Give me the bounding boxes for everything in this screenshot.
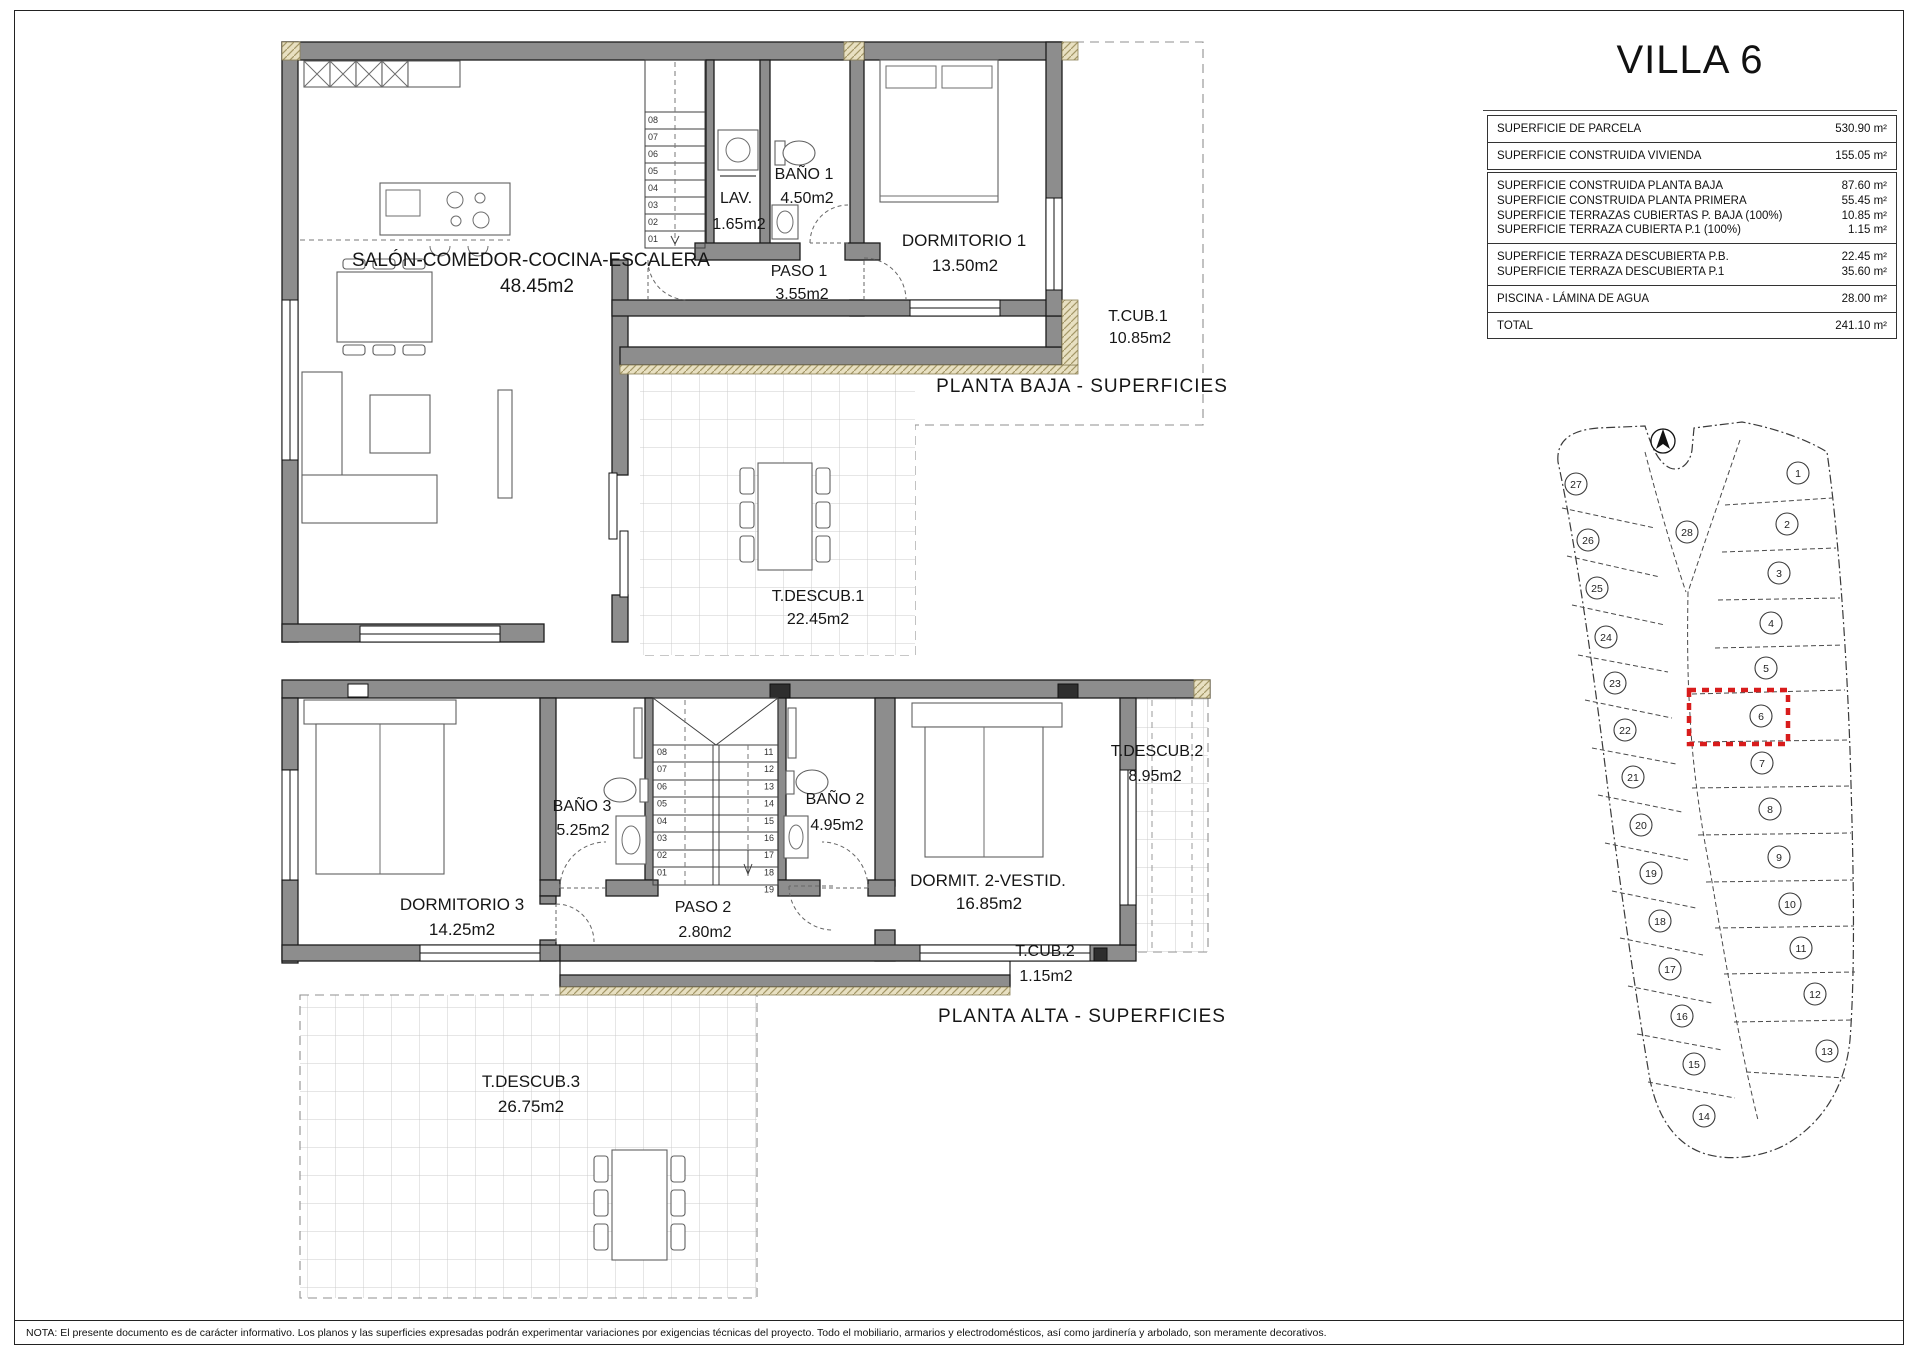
door-arc-dorm3: [556, 904, 594, 942]
terrace-table-p3: [594, 1150, 685, 1260]
label-paso2-name: PASO 2: [675, 899, 732, 916]
label-dorm3-area: 14.25m2: [429, 920, 495, 939]
label-dorm3-name: DORMITORIO 3: [400, 895, 524, 914]
svg-text:16: 16: [1676, 1011, 1688, 1023]
label-tcub1-name: T.CUB.1: [1108, 308, 1168, 325]
svg-text:16: 16: [764, 833, 774, 843]
label-tdescub2-name: T.DESCUB.2: [1111, 743, 1204, 760]
svg-text:12: 12: [764, 764, 774, 774]
svg-text:11: 11: [764, 747, 773, 757]
table-section: TOTAL241.10 m²: [1488, 312, 1896, 339]
svg-text:1: 1: [1795, 468, 1801, 480]
svg-text:24: 24: [1600, 632, 1612, 644]
table-section: PISCINA - LÁMINA DE AGUA28.00 m²: [1488, 285, 1896, 312]
svg-text:26: 26: [1582, 535, 1594, 547]
table-row: SUPERFICIE CONSTRUIDA VIVIENDA155.05 m²: [1488, 142, 1896, 169]
table-row: SUPERFICIE TERRAZAS CUBIERTAS P. BAJA (1…: [1497, 209, 1887, 224]
table-row: SUPERFICIE TERRAZA CUBIERTA P.1 (100%)1.…: [1497, 223, 1887, 238]
site-boundary: [1558, 422, 1854, 1158]
page-title: VILLA 6: [1483, 12, 1897, 108]
site-lot-lines-right: [1690, 498, 1855, 1078]
svg-text:18: 18: [1654, 916, 1666, 928]
dining-table: [337, 259, 432, 355]
door-arc-bano3: [560, 842, 606, 888]
table-row: SUPERFICIE CONSTRUIDA PLANTA PRIMERA55.4…: [1497, 194, 1887, 209]
label-tdescub3-name: T.DESCUB.3: [482, 1072, 580, 1091]
svg-text:07: 07: [648, 132, 658, 142]
label-tdescub3-area: 26.75m2: [498, 1097, 564, 1116]
plan-sheet: 0807060504030201: [0, 0, 1920, 1357]
svg-text:14: 14: [764, 799, 774, 809]
surface-table-detail: SUPERFICIE CONSTRUIDA PLANTA BAJA87.60 m…: [1487, 172, 1897, 339]
svg-text:05: 05: [657, 799, 667, 809]
label-tcub2-area: 1.15m2: [1019, 968, 1072, 985]
dorm3-bed: [304, 700, 456, 874]
terrace-table-p1: [740, 463, 830, 570]
stair-numbers-pa-left: 0807060504030201: [657, 747, 667, 877]
dorm2-bed: [912, 703, 1062, 857]
stair-numbers-pa-right: 111213141516171819: [764, 747, 774, 895]
svg-text:17: 17: [1664, 964, 1676, 976]
footer-note: NOTA: El presente documento es de caráct…: [14, 1320, 1904, 1345]
label-salon-area: 48.45m2: [500, 276, 574, 297]
label-tdescub1-area: 22.45m2: [787, 611, 849, 628]
label-bano3-area: 5.25m2: [556, 822, 609, 839]
table-section: SUPERFICIE CONSTRUIDA PLANTA BAJA87.60 m…: [1488, 173, 1896, 243]
svg-text:04: 04: [648, 183, 658, 193]
kitchen-fixtures: [300, 61, 510, 256]
bano3-fixtures: [604, 708, 648, 864]
label-dorm2-area: 16.85m2: [956, 894, 1022, 913]
label-tcub2-name: T.CUB.2: [1015, 943, 1075, 960]
svg-text:12: 12: [1809, 989, 1821, 1001]
site-spine-lines: [1645, 440, 1758, 1120]
svg-text:02: 02: [657, 850, 667, 860]
label-lav-area: 1.65m2: [712, 216, 765, 233]
svg-text:8: 8: [1767, 804, 1773, 816]
svg-text:4: 4: [1768, 618, 1774, 630]
surface-table-main: SUPERFICIE DE PARCELA530.90 m² SUPERFICI…: [1487, 115, 1897, 170]
kitchen-island: [380, 183, 510, 235]
svg-text:23: 23: [1609, 678, 1621, 690]
svg-text:9: 9: [1776, 852, 1782, 864]
door-arc-bano2: [822, 842, 868, 888]
door-arc-dorm1: [864, 258, 906, 300]
table-row: SUPERFICIE TERRAZA DESCUBIERTA P.135.60 …: [1497, 265, 1887, 280]
svg-text:18: 18: [764, 867, 774, 877]
svg-text:02: 02: [648, 217, 658, 227]
svg-text:25: 25: [1591, 583, 1603, 595]
svg-text:01: 01: [648, 234, 658, 244]
svg-text:14: 14: [1698, 1111, 1710, 1123]
svg-text:03: 03: [657, 833, 667, 843]
svg-text:06: 06: [657, 781, 667, 791]
living-furniture: [302, 372, 512, 523]
svg-text:3: 3: [1776, 568, 1782, 580]
svg-text:10: 10: [1784, 899, 1796, 911]
table-row: TOTAL241.10 m²: [1497, 319, 1887, 334]
svg-text:27: 27: [1570, 479, 1582, 491]
dorm1-bed: [880, 60, 998, 202]
svg-text:7: 7: [1759, 758, 1765, 770]
label-bano1-name: BAÑO 1: [775, 163, 834, 183]
svg-text:15: 15: [1688, 1059, 1700, 1071]
svg-text:19: 19: [764, 885, 774, 895]
svg-text:13: 13: [764, 781, 774, 791]
title-block: VILLA 6: [1483, 12, 1897, 111]
svg-text:05: 05: [648, 166, 658, 176]
planta-alta-plan: 0807060504030201 111213141516171819: [282, 680, 1226, 1298]
site-lot-lines-left: [1562, 508, 1735, 1098]
label-dorm2-name: DORMIT. 2-VESTID.: [910, 871, 1066, 890]
svg-text:21: 21: [1627, 772, 1639, 784]
tdescub2-tiles: [1136, 698, 1208, 952]
svg-text:15: 15: [764, 816, 774, 826]
svg-text:08: 08: [648, 115, 658, 125]
tdescub3-tiles: [300, 995, 757, 1298]
door-arc-bano1: [810, 205, 848, 243]
label-dorm1-area: 13.50m2: [932, 256, 998, 275]
label-salon-name: SALÓN-COMEDOR-COCINA-ESCALERA: [352, 249, 710, 271]
plot-numbers: 1 2 3 4 5 6 7 8 9 10 11 12 13 14 15 16 1…: [1565, 462, 1838, 1127]
svg-text:03: 03: [648, 200, 658, 210]
label-paso1-area: 3.55m2: [775, 286, 828, 303]
svg-text:11: 11: [1796, 943, 1807, 955]
label-bano2-name: BAÑO 2: [806, 788, 865, 808]
label-paso2-area: 2.80m2: [678, 924, 731, 941]
label-bano2-area: 4.95m2: [810, 817, 863, 834]
stairs-pa: 0807060504030201 111213141516171819: [653, 698, 778, 895]
stairs-pb: 0807060504030201: [645, 60, 705, 248]
label-tdescub1-name: T.DESCUB.1: [772, 588, 865, 605]
svg-text:28: 28: [1681, 527, 1693, 539]
highlighted-plot-6: [1689, 690, 1788, 744]
label-bano1-area: 4.50m2: [780, 190, 833, 207]
label-dorm1-name: DORMITORIO 1: [902, 231, 1026, 250]
svg-text:20: 20: [1635, 820, 1647, 832]
label-tcub1-area: 10.85m2: [1109, 330, 1171, 347]
svg-text:6: 6: [1758, 711, 1764, 723]
bano2-fixtures: [784, 708, 828, 858]
planta-baja-plan: 0807060504030201: [282, 42, 1228, 655]
svg-text:13: 13: [1821, 1046, 1833, 1058]
label-bano3-name: BAÑO 3: [553, 795, 612, 815]
svg-text:17: 17: [764, 850, 774, 860]
svg-text:07: 07: [657, 764, 667, 774]
planta-baja-title: PLANTA BAJA - SUPERFICIES: [936, 376, 1228, 397]
table-row: SUPERFICIE TERRAZA DESCUBIERTA P.B.22.45…: [1497, 250, 1887, 265]
table-section: SUPERFICIE TERRAZA DESCUBIERTA P.B.22.45…: [1488, 243, 1896, 285]
svg-text:5: 5: [1763, 663, 1769, 675]
svg-text:06: 06: [648, 149, 658, 159]
label-tdescub2-area: 8.95m2: [1128, 768, 1181, 785]
svg-text:08: 08: [657, 747, 667, 757]
label-lav-name: LAV.: [720, 190, 752, 207]
svg-text:22: 22: [1619, 725, 1631, 737]
table-row: SUPERFICIE DE PARCELA530.90 m²: [1488, 116, 1896, 142]
svg-text:19: 19: [1645, 868, 1657, 880]
label-paso1-name: PASO 1: [771, 263, 828, 280]
svg-text:01: 01: [657, 867, 667, 877]
planta-alta-title: PLANTA ALTA - SUPERFICIES: [938, 1006, 1226, 1027]
table-row: SUPERFICIE CONSTRUIDA PLANTA BAJA87.60 m…: [1497, 179, 1887, 194]
site-plan: 1 2 3 4 5 6 7 8 9 10 11 12 13 14 15 16 1…: [1558, 422, 1855, 1158]
washer-icon: [718, 130, 758, 176]
svg-text:04: 04: [657, 816, 667, 826]
north-compass-icon: [1651, 429, 1675, 453]
svg-text:2: 2: [1784, 519, 1790, 531]
table-row: PISCINA - LÁMINA DE AGUA28.00 m²: [1497, 292, 1887, 307]
